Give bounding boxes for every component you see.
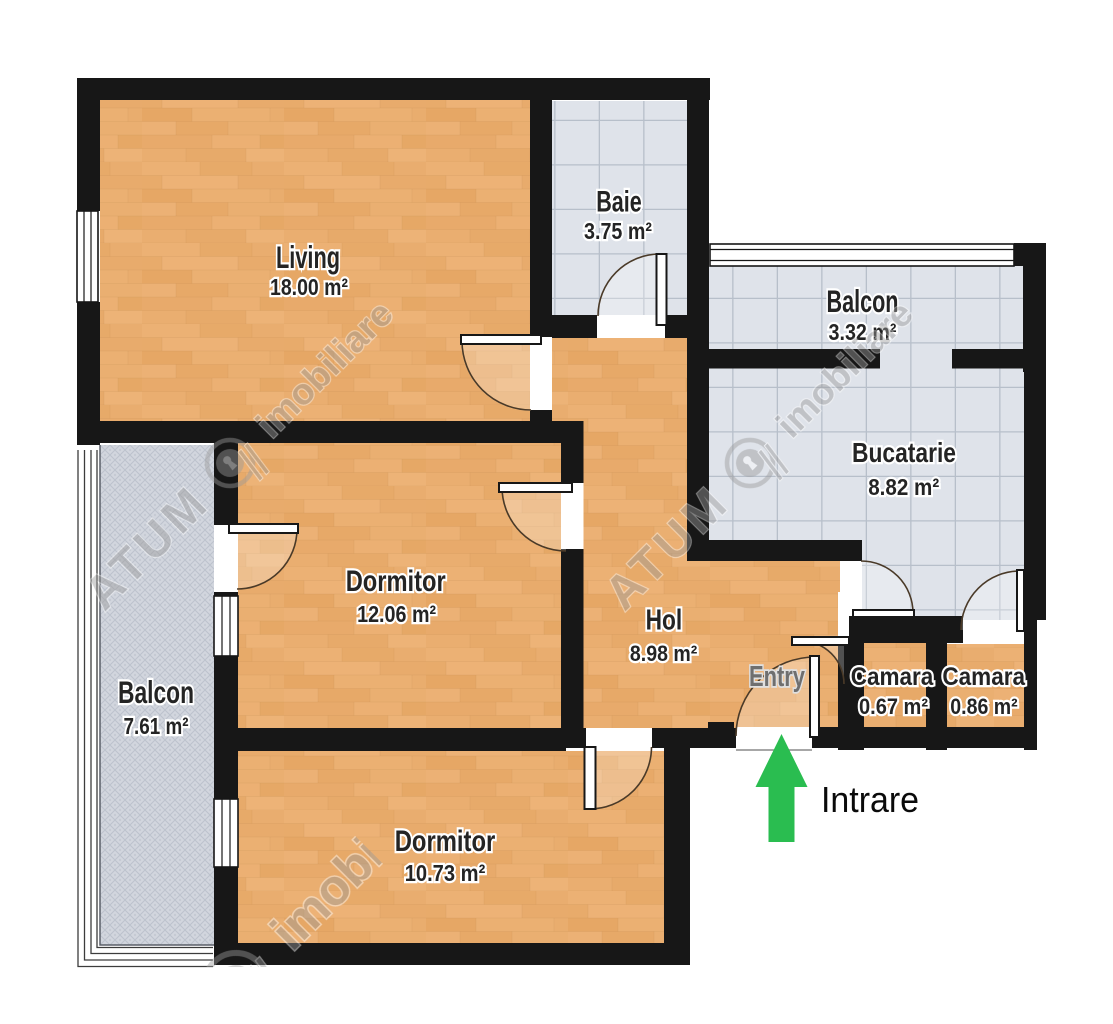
svg-text:10.73 m²: 10.73 m² xyxy=(405,860,486,886)
svg-text:0.67 m²: 0.67 m² xyxy=(859,694,928,719)
svg-text:3.75 m²: 3.75 m² xyxy=(584,218,652,244)
svg-text:Dormitor: Dormitor xyxy=(395,825,496,858)
svg-text:0.86 m²: 0.86 m² xyxy=(950,694,1017,719)
svg-text:8.82 m²: 8.82 m² xyxy=(868,474,939,500)
svg-text:18.00 m²: 18.00 m² xyxy=(270,274,348,300)
svg-text:Intrare: Intrare xyxy=(821,779,919,820)
svg-text:Balcon: Balcon xyxy=(118,674,194,710)
svg-text:Bucatarie: Bucatarie xyxy=(852,437,956,468)
svg-text:12.06 m²: 12.06 m² xyxy=(357,601,436,627)
svg-text:Camara: Camara xyxy=(942,663,1026,691)
svg-text:Hol: Hol xyxy=(646,605,683,637)
svg-text:8.98 m²: 8.98 m² xyxy=(630,641,697,666)
svg-text:Baie: Baie xyxy=(596,186,642,219)
svg-text:7.61 m²: 7.61 m² xyxy=(124,713,189,739)
svg-text:Camara: Camara xyxy=(851,663,935,691)
svg-text:Living: Living xyxy=(276,239,340,275)
svg-text:Entry: Entry xyxy=(749,661,805,693)
svg-text:Dormitor: Dormitor xyxy=(346,565,446,598)
